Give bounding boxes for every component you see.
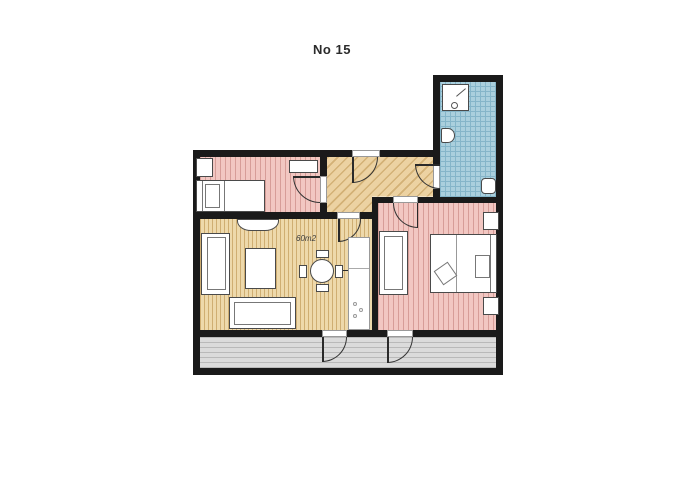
bed-headboard-line	[202, 181, 203, 211]
terrace-floor	[200, 337, 496, 368]
wall-terrace-c	[413, 330, 503, 337]
bedroom1-door-leaf	[293, 176, 320, 178]
stove-burner-icon	[353, 314, 357, 318]
wall-bedroom1-living	[193, 212, 327, 219]
bedroom1-nightstand	[196, 158, 213, 177]
bedroom2-threshold	[393, 196, 418, 203]
terrace-door-a-leaf	[322, 337, 324, 362]
sink	[481, 178, 496, 194]
wall-top-right	[380, 150, 440, 157]
living-threshold	[337, 212, 360, 219]
entry-threshold	[352, 150, 380, 157]
wall-bedroom1-right-upper	[320, 150, 327, 176]
dining-table	[310, 259, 334, 283]
bedroom1-threshold	[320, 176, 327, 203]
terrace-threshold-a	[322, 330, 347, 337]
entry-door-leaf	[352, 157, 354, 183]
stove-burner-icon	[353, 302, 357, 306]
bedroom2-wardrobe	[379, 231, 408, 295]
sofa-bottom-cushion	[234, 302, 291, 325]
coffee-table	[245, 248, 276, 289]
stove-burner-icon	[359, 308, 363, 312]
bed-pillow	[205, 184, 220, 208]
wall-terrace-a	[193, 330, 322, 337]
toilet	[441, 128, 455, 143]
terrace-door-b-leaf	[387, 337, 389, 363]
dining-chair-south	[316, 284, 329, 292]
wardrobe-inner	[384, 236, 403, 290]
plan-title: No 15	[232, 42, 432, 57]
bedroom2-bed	[430, 234, 497, 293]
terrace-threshold-b	[387, 330, 413, 337]
bathroom-door-leaf	[415, 164, 440, 166]
sofa-bottom	[229, 297, 296, 329]
wall-hall-living-left	[327, 212, 337, 219]
dining-chair-north	[316, 250, 329, 258]
bedroom1-bed	[196, 180, 265, 212]
bed2-pillow	[434, 262, 458, 286]
bedroom2-nightstand-bottom	[483, 297, 499, 315]
bed2-fold-line	[456, 235, 457, 292]
sofa-left-cushion	[207, 237, 226, 290]
wall-kitchen-bedroom2	[372, 197, 378, 337]
wall-bottom	[193, 368, 503, 375]
shower	[442, 84, 469, 111]
bedroom2-door-leaf	[417, 203, 419, 228]
living-door-leaf	[338, 219, 340, 242]
wall-bedroom2-top-left	[378, 197, 393, 203]
area-label: 60m2	[296, 234, 316, 243]
shower-head-icon	[451, 102, 458, 109]
shower-arm-icon	[456, 88, 466, 96]
kitchen-counter	[348, 237, 370, 330]
wall-bathroom-top	[433, 75, 503, 82]
dining-chair-west	[299, 265, 307, 278]
bedroom2-nightstand-top	[483, 212, 499, 230]
kitchen-divider-line	[349, 268, 369, 269]
wall-terrace-b	[347, 330, 387, 337]
bed2-side-panel	[475, 255, 490, 278]
bed2-headboard-line	[490, 235, 491, 292]
sofa-left	[201, 233, 230, 295]
wall-top-left	[193, 150, 352, 157]
bedroom1-wall-cabinet	[289, 160, 318, 173]
bed-fold-line	[224, 181, 225, 211]
floor-plan-canvas: No 15	[0, 0, 700, 500]
tv-console	[237, 219, 279, 231]
dining-chair-east	[335, 265, 343, 278]
wall-bedroom2-top-right	[418, 197, 503, 203]
